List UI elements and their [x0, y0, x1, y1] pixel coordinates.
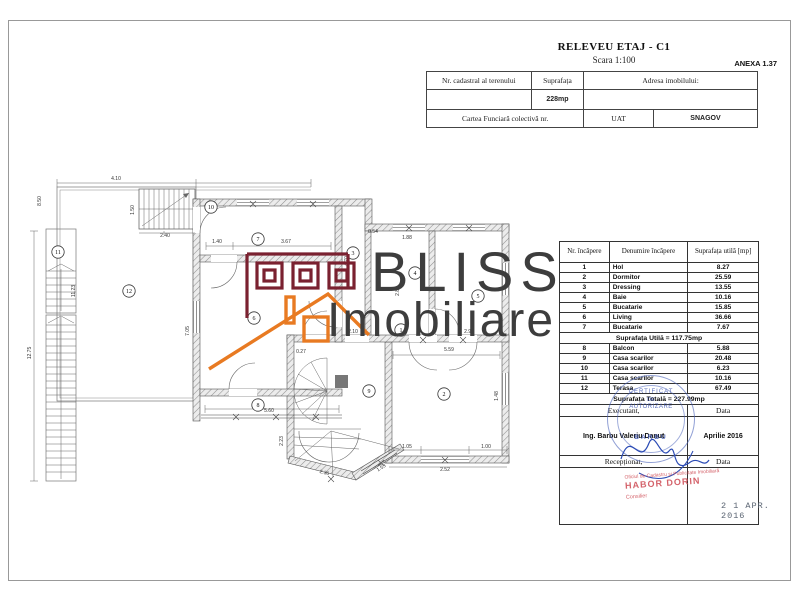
- dimension-label: 0.27: [296, 349, 306, 355]
- room-row: 10Casa scarilor6.23: [560, 364, 759, 374]
- uat-label: UAT: [584, 110, 654, 127]
- room-table-header-name: Denumire încăpere: [609, 242, 688, 263]
- svg-text:11: 11: [55, 250, 61, 256]
- dimension-label: 3.67: [281, 239, 291, 245]
- dimension-label: 11.23: [71, 285, 77, 297]
- dimension-label: 1.50: [130, 205, 136, 215]
- dimension-label: 8.50: [37, 196, 43, 206]
- dimension-label: 1.00: [481, 444, 491, 450]
- stamp-line3: AUTORIZARE: [608, 404, 694, 410]
- address-cell: [584, 90, 758, 110]
- dimension-label: 4.10: [111, 176, 121, 182]
- room-table-header-area: Suprafața utilă [mp]: [688, 242, 759, 263]
- dimension-label: 2.40: [160, 233, 170, 239]
- dimension-label: 5.60: [264, 408, 274, 414]
- utila-summary-row: Suprafața Utilă = 117.75mp: [560, 333, 759, 344]
- room-row: 8Balcon5.88: [560, 344, 759, 354]
- dimension-label: 2.52: [440, 467, 450, 473]
- cadastral-col2-header: Suprafața: [531, 72, 584, 90]
- svg-text:7: 7: [257, 237, 260, 243]
- room-row: 7Bucatarie7.67: [560, 323, 759, 333]
- room-table-header-nr: Nr. încăpere: [560, 242, 610, 263]
- cadastral-number-cell: [427, 90, 532, 110]
- uat-value: SNAGOV: [654, 115, 757, 122]
- dimension-label: 12.75: [27, 347, 33, 360]
- left-stairs: [46, 229, 76, 481]
- cadastral-table: Nr. cadastral al terenului Suprafața Adr…: [426, 71, 758, 128]
- dimension-label: 0.54: [368, 229, 378, 235]
- dimension-label: 7.05: [185, 326, 191, 336]
- page-title: RELEVEU ETAJ - C1: [479, 41, 749, 53]
- dimension-label: 1.05: [402, 444, 412, 450]
- cadastral-col3-header: Adresa imobilului:: [584, 72, 758, 90]
- room-row: 9Casa scarilor20.48: [560, 354, 759, 364]
- dimension-label: 1.48: [494, 391, 500, 401]
- dimension-label: 2.36: [319, 469, 330, 477]
- svg-text:9: 9: [368, 389, 371, 395]
- svg-text:12: 12: [126, 289, 132, 295]
- room-row: 4Baie10.16: [560, 293, 759, 303]
- room-row: 1Hol8.27: [560, 263, 759, 273]
- svg-text:2: 2: [443, 392, 446, 398]
- document-page: 4.102.401.508.5011.2312.751.403.674.707.…: [8, 20, 791, 581]
- annex-label: ANEXA 1.37: [697, 59, 777, 68]
- svg-text:10: 10: [208, 205, 214, 211]
- stamp-line1: CERTIFICAT: [608, 389, 694, 395]
- room-row: 3Dressing13.55: [560, 283, 759, 293]
- cadastral-col1-header: Nr. cadastral al terenului: [427, 72, 532, 90]
- room-row: 6Living36.66: [560, 313, 759, 323]
- svg-text:6: 6: [253, 316, 256, 322]
- stamp-line2: DE: [608, 397, 694, 403]
- dimension-label: 1.40: [212, 239, 222, 245]
- svg-text:3: 3: [352, 251, 355, 257]
- date-stamp: 2 1 APR. 2016: [721, 501, 790, 521]
- top-stairs: [139, 189, 195, 229]
- cartea-funciara-label: Cartea Funciară colectivă nr.: [427, 110, 584, 128]
- watermark-imobiliare: Imobiliare: [327, 293, 555, 348]
- svg-text:8: 8: [257, 403, 260, 409]
- surface-value: 228mp: [531, 90, 584, 110]
- room-row: 5Bucatarie15.85: [560, 303, 759, 313]
- room-row: 2Dormitor25.59: [560, 273, 759, 283]
- dimension-label: 2.23: [279, 436, 285, 446]
